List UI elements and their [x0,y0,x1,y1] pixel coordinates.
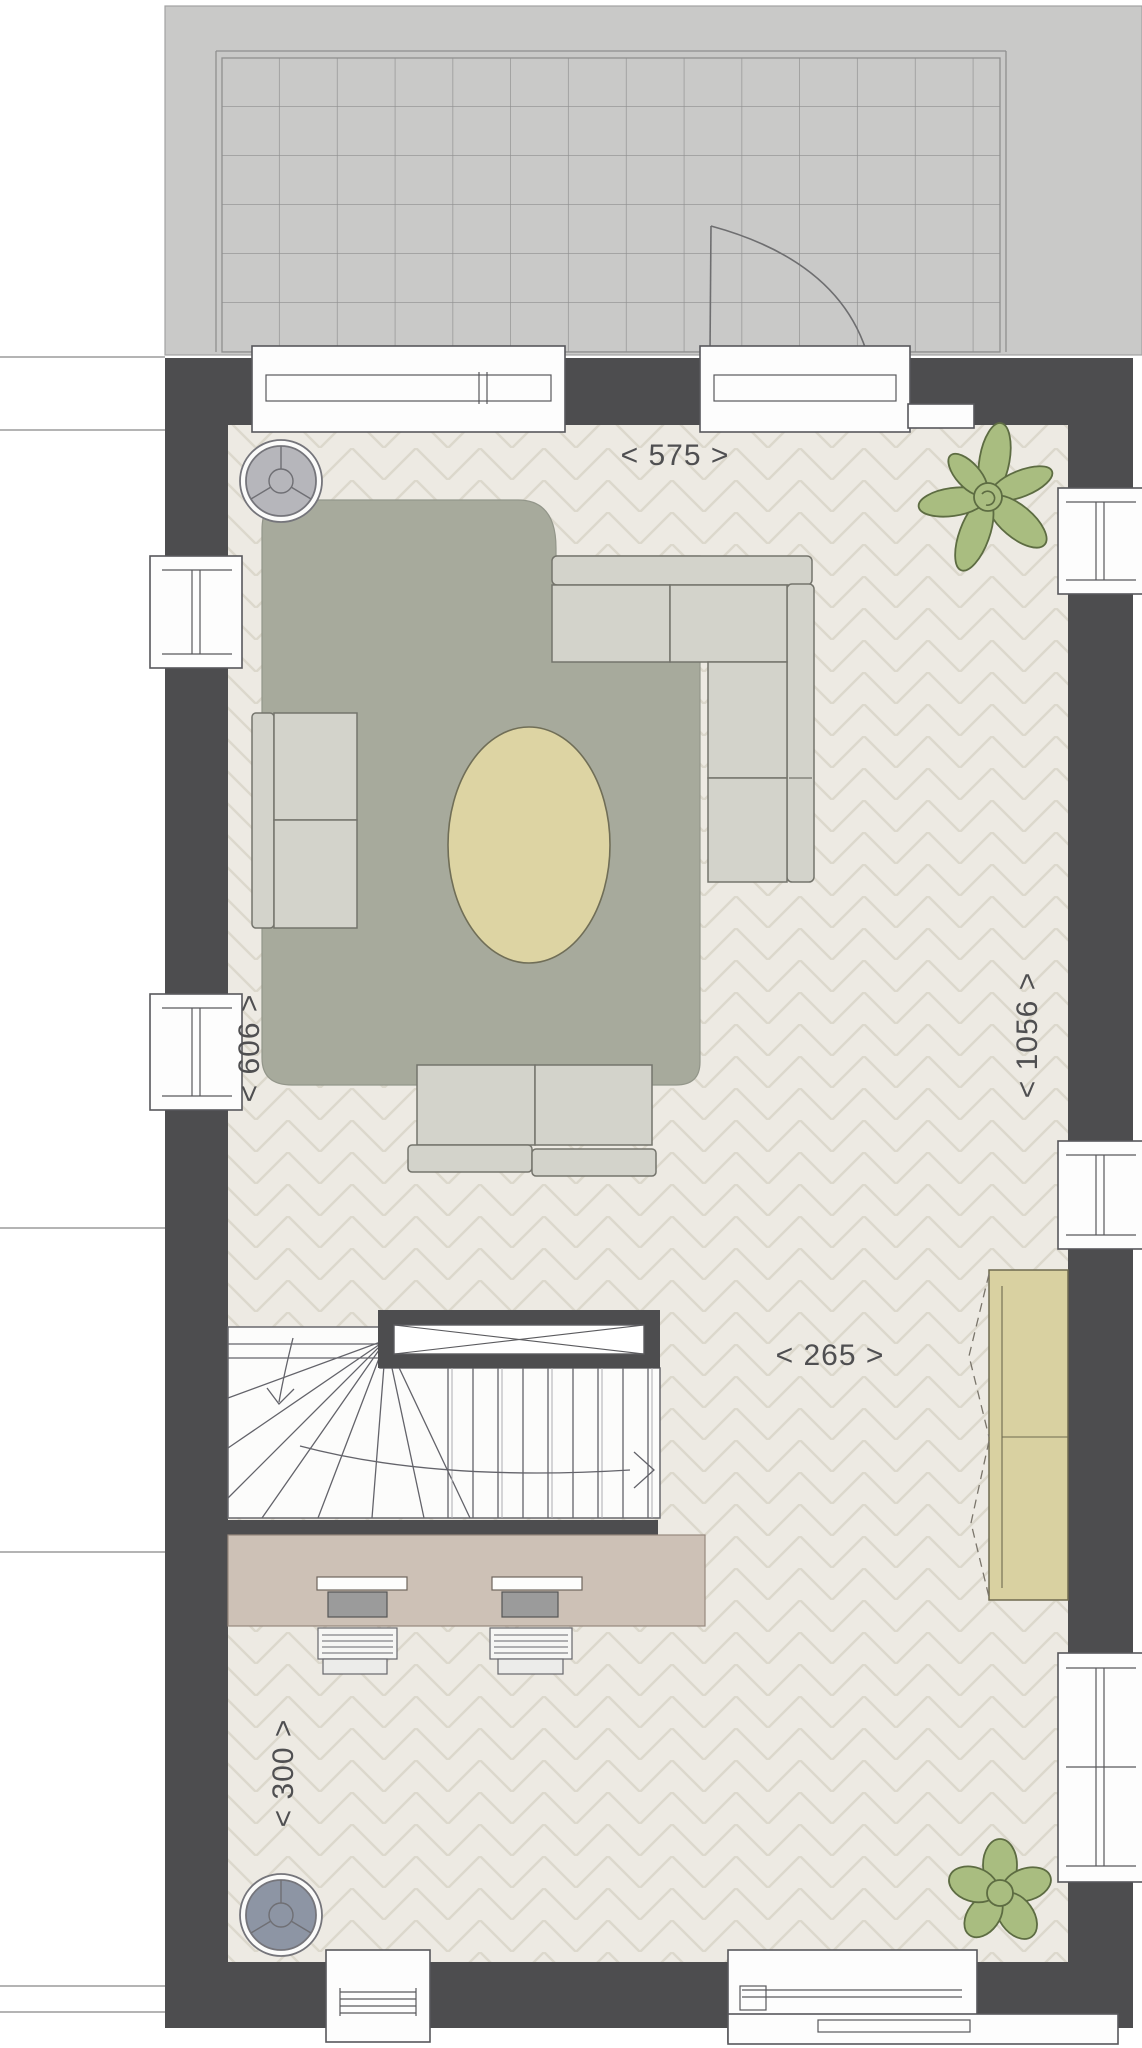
floor-plan-drawing [0,0,1142,2048]
dimension-right-wall: < 1056 > [1011,972,1045,1098]
workstation-2-shelf [492,1577,582,1590]
window-top-left [252,346,565,432]
window-right-lower [1058,1653,1142,1882]
round-side-chair-top [240,440,322,522]
context-lines [0,357,165,2012]
workstation-2-monitor [502,1592,558,1617]
desk-chair-2 [490,1628,572,1674]
round-side-chair-bottom [240,1874,322,1956]
two-seat-sofa [408,1065,656,1176]
desk [228,1535,705,1626]
terrace [165,6,1142,355]
window-right-middle [1058,1141,1142,1249]
workstation-1-monitor [328,1592,387,1617]
window-left-upper [150,556,242,668]
stair-railing [378,1310,660,1368]
dimension-bottom-area: < 300 > [267,1719,301,1828]
staircase [228,1310,660,1535]
dimension-terrace-width: < 575 > [621,439,730,473]
workstation-1-shelf [317,1577,407,1590]
armchair [252,713,357,928]
window-right-upper [1058,488,1142,594]
floor-plan: < 575 > < 606 > < 1056 > < 265 > < 300 > [0,0,1142,2048]
terrace-tile-grid [222,58,1000,352]
oval-coffee-table [448,727,610,963]
stair-bottom-wall [228,1520,658,1535]
dimension-left-wall: < 606 > [233,994,267,1103]
window-bottom-left [326,1950,430,2042]
window-left-lower [150,994,242,1110]
desk-chair-1 [318,1628,397,1674]
dimension-stair-area: < 265 > [776,1339,885,1373]
